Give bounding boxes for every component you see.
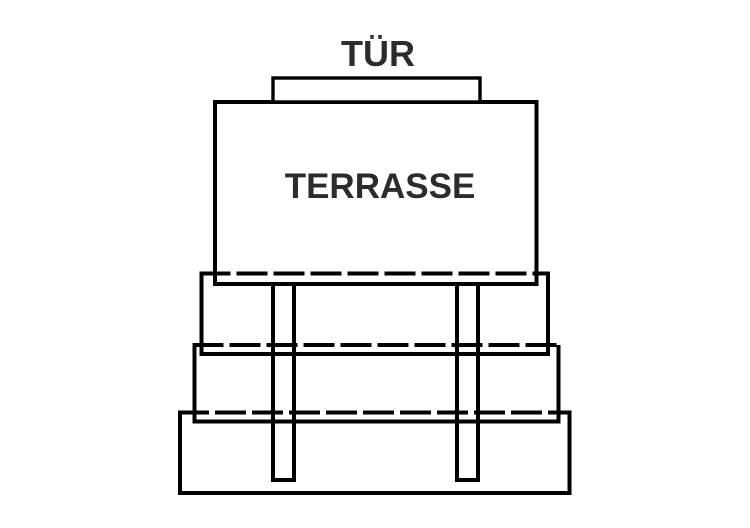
terrace-plan-page: TÜR TERRASSE	[0, 0, 750, 528]
terrace-label: TERRASSE	[285, 167, 476, 206]
door-label: TÜR	[341, 33, 415, 74]
step-3-outline	[180, 413, 570, 494]
door-threshold	[273, 78, 480, 102]
terrace-plan-diagram: TÜR TERRASSE	[0, 0, 750, 528]
step-2-outline	[195, 345, 559, 422]
